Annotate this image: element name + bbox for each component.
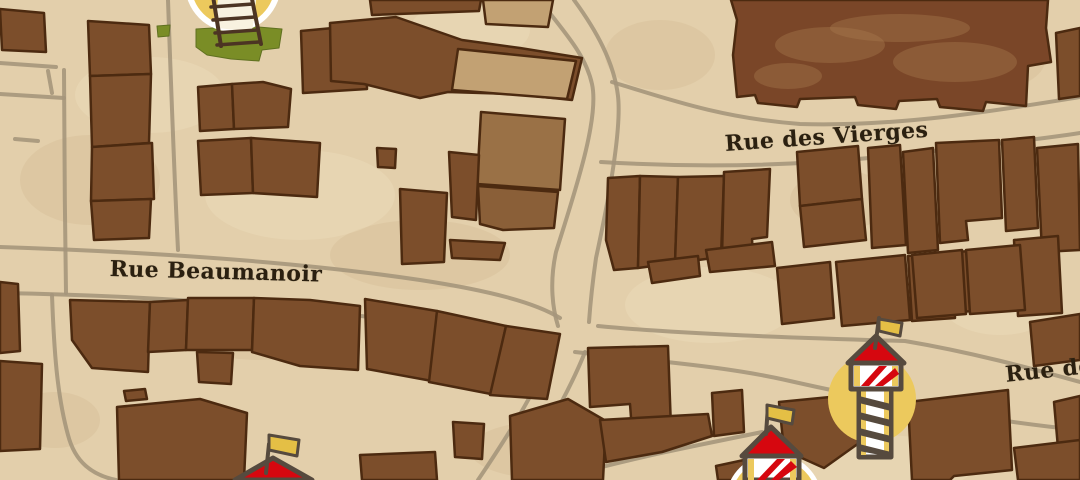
street-line <box>15 139 38 141</box>
building-footprint <box>198 84 234 131</box>
building-footprint <box>966 245 1025 314</box>
building-footprint <box>0 361 42 451</box>
building-footprint <box>91 143 154 201</box>
building-footprint <box>377 148 396 168</box>
building-footprint <box>360 452 437 480</box>
building-footprint <box>836 255 910 326</box>
building-footprint <box>198 138 253 195</box>
building-footprint <box>370 0 481 15</box>
building-footprint <box>477 112 565 190</box>
map-illustration <box>0 0 1080 480</box>
building-footprint <box>638 176 678 268</box>
building-footprint <box>88 21 151 76</box>
street-line <box>64 70 66 293</box>
tower-body-trim <box>748 459 754 480</box>
building-mottle <box>830 14 970 42</box>
building-footprint <box>124 389 147 401</box>
building-footprint <box>365 299 437 381</box>
grass-patch <box>157 25 170 37</box>
building-footprint <box>777 262 834 324</box>
building-footprint <box>0 9 46 52</box>
building-footprint <box>1014 440 1080 480</box>
building-footprint <box>1002 137 1038 231</box>
building-footprint <box>868 145 906 248</box>
building-footprint <box>90 74 151 147</box>
building-footprint <box>606 176 640 270</box>
building-footprint <box>117 399 247 480</box>
building-footprint <box>0 282 20 353</box>
building-footprint <box>197 352 233 384</box>
tower-body-trim <box>854 366 860 386</box>
building-footprint <box>478 186 558 230</box>
building-footprint <box>251 138 320 197</box>
building-footprint <box>1056 28 1080 99</box>
building-footprint <box>148 300 188 352</box>
building-footprint <box>450 240 505 260</box>
building-footprint <box>91 199 151 240</box>
building-footprint <box>903 148 938 253</box>
building-footprint <box>453 422 484 459</box>
building-footprint <box>449 152 479 220</box>
building-footprint <box>712 390 744 436</box>
street-label-rue-beaumanoir: Rue Beaumanoir <box>109 256 322 288</box>
map-canvas[interactable]: Rue Beaumanoir Rue des Vierges Rue de <box>0 0 1080 480</box>
building-mottle <box>893 42 1017 82</box>
building-footprint <box>232 82 291 129</box>
building-footprint <box>800 199 866 247</box>
building-footprint <box>797 146 862 206</box>
building-footprint <box>912 250 966 318</box>
building-mottle <box>754 63 822 89</box>
building-footprint <box>400 189 447 264</box>
building-footprint <box>483 0 553 27</box>
building-footprint <box>186 298 254 350</box>
texture-blob <box>605 20 715 90</box>
building-footprint <box>908 390 1012 480</box>
